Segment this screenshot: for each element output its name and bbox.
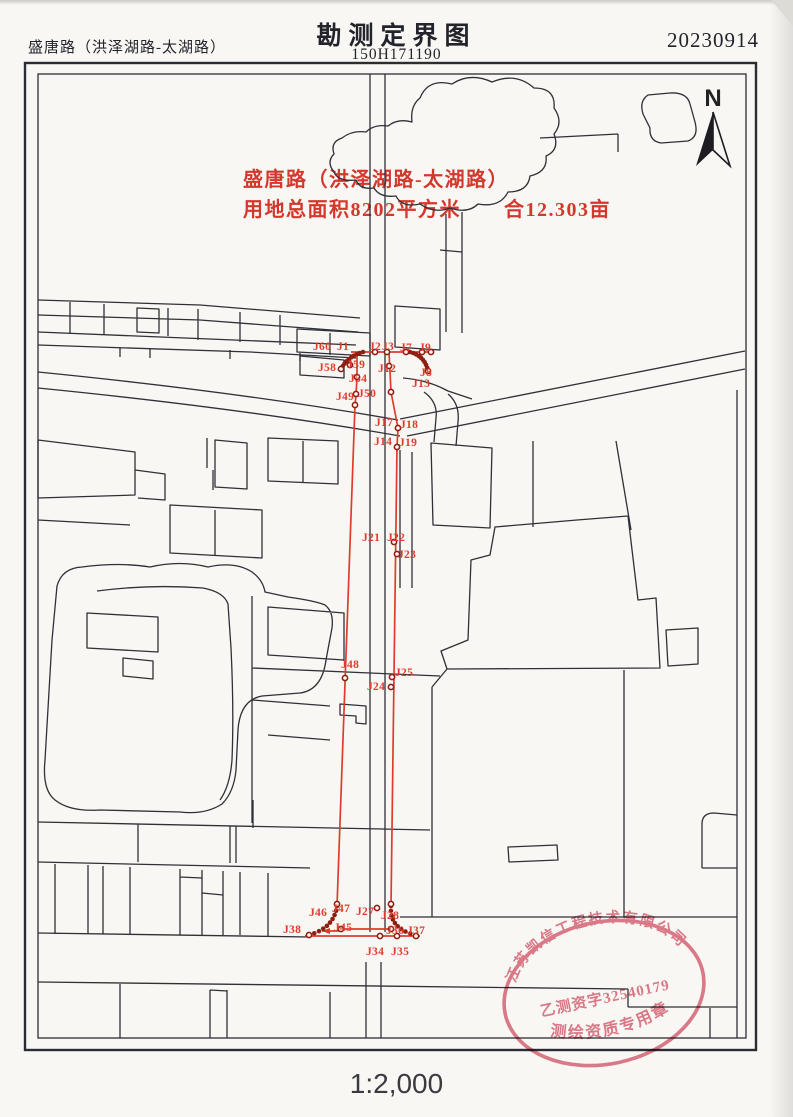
survey-vertex-dot	[306, 932, 311, 937]
survey-point-label-J17: J17	[375, 417, 393, 429]
survey-point-label-J35: J35	[391, 946, 409, 958]
boundary-bead-dot	[321, 926, 326, 931]
survey-point-label-J50: J50	[358, 388, 376, 400]
survey-point-label-J38: J38	[283, 924, 301, 936]
survey-point-label-J24: J24	[367, 681, 385, 693]
survey-point-label-J49: J49	[336, 391, 354, 403]
red-boundary-layer: J60J1J2J3J7J9J58J59J12J8J54J13J49J50J17J…	[283, 341, 434, 958]
survey-point-label-J25: J25	[395, 667, 413, 679]
survey-point-label-J19: J19	[399, 437, 417, 449]
boundary-bead-dot	[317, 929, 322, 934]
survey-point-label-J36: J36	[386, 925, 404, 937]
survey-point-label-J12: J12	[378, 363, 396, 375]
survey-point-label-J28: J28	[381, 910, 399, 922]
survey-point-label-J45: J45	[334, 922, 352, 934]
survey-point-label-J48: J48	[341, 659, 359, 671]
boundary-bead-dot	[312, 931, 317, 936]
north-arrow-right-half	[713, 112, 730, 166]
red-boundary-line	[337, 352, 357, 906]
survey-point-label-J23: J23	[398, 549, 416, 561]
north-label: N	[704, 85, 721, 112]
survey-point-label-J21: J21	[362, 532, 380, 544]
boundary-bead-dot	[325, 924, 330, 929]
survey-vertex-dot	[338, 366, 343, 371]
parcel-lines-topleft	[38, 300, 400, 436]
survey-point-label-J13: J13	[412, 378, 430, 390]
survey-point-label-J2: J2	[369, 341, 381, 353]
survey-point-label-J46: J46	[309, 907, 327, 919]
map-canvas: N J60J1J2J3J7J9J58J59J12J8J54J13J49J50J1…	[0, 0, 793, 1117]
pond-outline	[44, 564, 440, 824]
survey-point-label-J34: J34	[366, 946, 384, 958]
survey-point-label-J18: J18	[400, 419, 418, 431]
survey-point-label-J58: J58	[318, 362, 336, 374]
survey-point-label-J22: J22	[387, 532, 405, 544]
survey-vertex-dot	[388, 684, 393, 689]
survey-vertex-dot	[342, 675, 347, 680]
parcel-lines-right	[400, 93, 745, 1038]
north-arrow-left-half	[696, 112, 713, 166]
survey-point-label-J7: J7	[400, 342, 412, 354]
central-road-lines	[366, 74, 472, 1038]
survey-point-label-J60: J60	[313, 341, 331, 353]
survey-point-label-J47: J47	[332, 903, 350, 915]
scanned-survey-sheet: 盛唐路（洪泽湖路-太湖路） 勘测定界图 150H171190 20230914 …	[0, 0, 793, 1117]
survey-point-label-J59: J59	[347, 359, 365, 371]
survey-point-label-J54: J54	[349, 373, 367, 385]
survey-vertex-dot	[389, 674, 394, 679]
survey-point-label-J14: J14	[374, 436, 392, 448]
survey-vertex-dot	[352, 402, 357, 407]
survey-point-label-J1: J1	[337, 341, 349, 353]
survey-point-label-J9: J9	[419, 342, 431, 354]
survey-vertex-dot	[374, 905, 379, 910]
survey-vertex-dot	[388, 901, 393, 906]
qualification-stamp: 江苏凯信工程技术有限公司 乙测资字32540179 测绘资质专用章	[488, 890, 718, 1084]
survey-point-label-J27: J27	[356, 906, 374, 918]
survey-point-label-J3: J3	[382, 341, 394, 353]
survey-point-label-J37: J37	[407, 925, 425, 937]
survey-vertex-dot	[388, 389, 393, 394]
stamp-company-text: 江苏凯信工程技术有限公司	[492, 891, 692, 988]
survey-vertex-dot	[377, 933, 382, 938]
north-arrow: N	[696, 85, 730, 166]
top-pond-blob	[330, 77, 618, 350]
scale-label: 1:2,000	[0, 1068, 793, 1100]
